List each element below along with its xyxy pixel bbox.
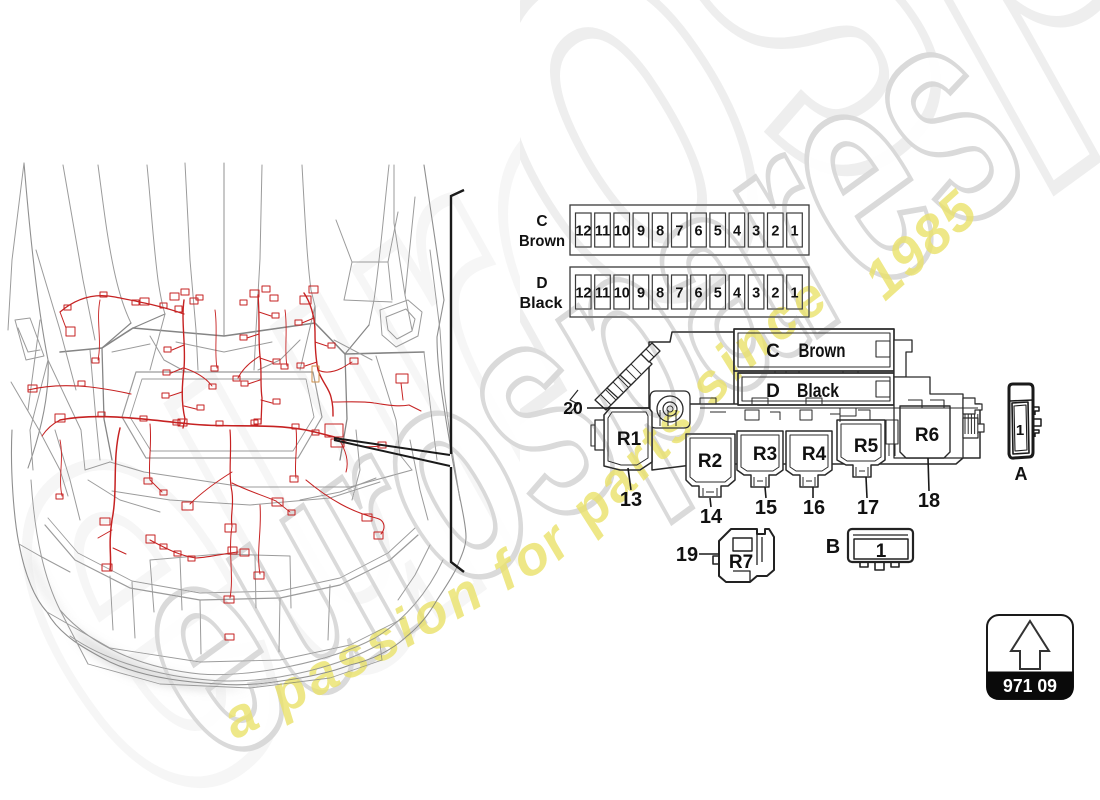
svg-text:19: 19	[676, 544, 698, 566]
svg-text:1: 1	[1016, 422, 1024, 439]
svg-text:R4: R4	[802, 444, 827, 465]
svg-text:18: 18	[918, 490, 940, 512]
svg-text:R6: R6	[915, 425, 939, 446]
svg-text:16: 16	[803, 497, 825, 519]
svg-text:1: 1	[876, 541, 887, 562]
svg-text:B: B	[826, 536, 840, 558]
svg-text:15: 15	[755, 497, 777, 519]
svg-text:17: 17	[857, 497, 879, 519]
svg-text:14: 14	[700, 506, 723, 528]
svg-text:A: A	[1015, 464, 1028, 484]
svg-text:R7: R7	[729, 552, 753, 573]
svg-text:R5: R5	[854, 436, 879, 457]
svg-text:971 09: 971 09	[1003, 675, 1057, 696]
